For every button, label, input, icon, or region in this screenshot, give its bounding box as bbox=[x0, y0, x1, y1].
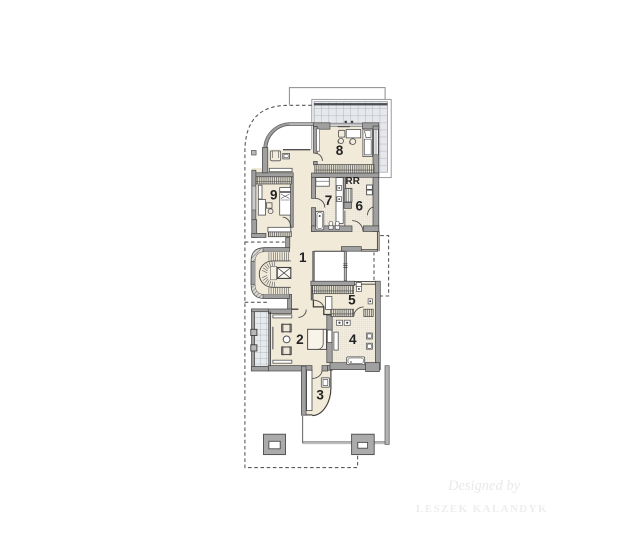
svg-text:1: 1 bbox=[299, 250, 307, 265]
svg-text:7: 7 bbox=[325, 193, 333, 208]
svg-text:6: 6 bbox=[356, 199, 364, 214]
svg-text:4: 4 bbox=[349, 332, 357, 347]
svg-text:2: 2 bbox=[296, 332, 304, 347]
svg-text:Designed by: Designed by bbox=[447, 478, 521, 494]
svg-text:LESZEK KALANDYK: LESZEK KALANDYK bbox=[416, 503, 548, 515]
svg-text:3: 3 bbox=[316, 388, 324, 403]
svg-text:5: 5 bbox=[348, 293, 356, 308]
svg-text:RR: RR bbox=[346, 176, 361, 187]
svg-text:9: 9 bbox=[270, 187, 278, 202]
svg-text:8: 8 bbox=[336, 143, 344, 158]
